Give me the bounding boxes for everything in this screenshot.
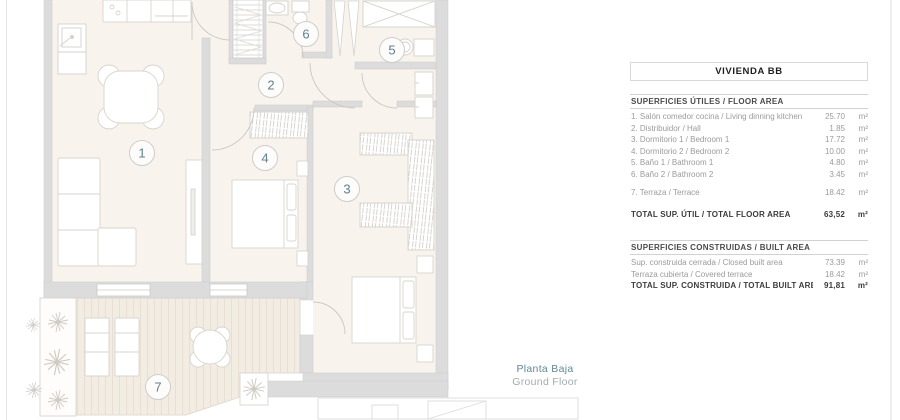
area-row-unit: m² [845,111,868,123]
area-row-val: 73.39 [813,257,845,269]
svg-text:2: 2 [267,78,274,93]
bedroom2-wardrobe [250,112,308,138]
area-section: SUPERFICIES ÚTILES / FLOOR AREA1. Salón … [630,94,868,220]
area-row: 6. Baño 2 / Bathroom 23.45m² [630,169,868,181]
area-row-unit: m² [845,123,868,135]
floor-label-en: Ground Floor [495,376,595,389]
terrace-table [190,327,230,367]
svg-text:3: 3 [343,182,350,197]
total-row-unit: m² [845,280,868,292]
area-row-lbl: Sup. construida cerrada / Closed built a… [631,257,813,269]
svg-text:5: 5 [388,43,395,58]
room-label-2: 2 [259,73,284,98]
area-row-lbl: 4. Dormitorio 2 / Bedroom 2 [631,146,813,158]
total-row-val: 91,81 [813,280,845,292]
unit-title: VIVIENDA BB [630,62,868,81]
adjacent-unit-outline [318,398,578,419]
room-label-5: 5 [380,38,405,63]
section-header: SUPERFICIES CONSTRUIDAS / BUILT AREA [630,240,868,255]
area-row-unit: m² [845,257,868,269]
hall-closet [415,72,433,118]
area-row-unit: m² [845,169,868,181]
area-row-unit: m² [845,187,868,199]
room-label-6: 6 [294,22,319,47]
area-row-lbl: 6. Baño 2 / Bathroom 2 [631,169,813,181]
area-sections: SUPERFICIES ÚTILES / FLOOR AREA1. Salón … [630,94,868,292]
area-row-lbl: Terraza cubierta / Covered terrace [631,269,813,281]
area-row-val: 25.70 [813,111,845,123]
svg-text:7: 7 [154,380,161,395]
total-row: TOTAL SUP. CONSTRUIDA / TOTAL BUILT AREA… [630,280,868,292]
room-label-4: 4 [253,146,278,171]
area-row-val: 3.45 [813,169,845,181]
area-row: 2. Distribuidor / Hall1.85m² [630,123,868,135]
area-row-val: 18.42 [813,187,845,199]
area-row: 7. Terraza / Terrace18.42m² [630,187,868,199]
dining-table [98,65,164,129]
area-row-val: 1.85 [813,123,845,135]
room-label-7: 7 [146,375,171,400]
svg-text:6: 6 [302,27,309,42]
area-row-val: 10.00 [813,146,845,158]
floor-label: Planta Baja Ground Floor [495,363,595,389]
area-section: SUPERFICIES CONSTRUIDAS / BUILT AREASup.… [630,240,868,292]
svg-text:4: 4 [261,151,268,166]
section-header: SUPERFICIES ÚTILES / FLOOR AREA [630,94,868,109]
area-row-val: 4.80 [813,157,845,169]
screenshot-root: 1 2 3 4 5 6 7 VIVIENDA BB SUPERFICIES ÚT… [0,0,900,420]
area-row-lbl: 7. Terraza / Terrace [631,187,813,199]
total-row: TOTAL SUP. ÚTIL / TOTAL FLOOR AREA63,52m… [630,209,868,221]
kitchen-sink [58,24,86,74]
total-row-lbl: TOTAL SUP. ÚTIL / TOTAL FLOOR AREA [631,209,813,221]
area-row: 3. Dormitorio 1 / Bedroom 117.72m² [630,134,868,146]
total-row-val: 63,52 [813,209,845,221]
area-row: 5. Baño 1 / Bathroom 14.80m² [630,157,868,169]
staircase [233,0,263,58]
room-label-1: 1 [130,141,155,166]
area-row-lbl: 2. Distribuidor / Hall [631,123,813,135]
area-row-unit: m² [845,157,868,169]
area-row-val: 18.42 [813,269,845,281]
area-row: 4. Dormitorio 2 / Bedroom 210.00m² [630,146,868,158]
area-row-unit: m² [845,269,868,281]
room-label-3: 3 [335,177,360,202]
tv-unit [186,160,202,264]
area-table-panel: VIVIENDA BB SUPERFICIES ÚTILES / FLOOR A… [630,62,868,292]
floor-label-es: Planta Baja [495,363,595,376]
total-row-unit: m² [845,209,868,221]
total-row-lbl: TOTAL SUP. CONSTRUIDA / TOTAL BUILT AREA [631,280,813,292]
area-row-unit: m² [845,146,868,158]
svg-text:1: 1 [138,146,145,161]
kitchen-counter [103,0,191,22]
area-row-unit: m² [845,134,868,146]
area-row-lbl: 3. Dormitorio 1 / Bedroom 1 [631,134,813,146]
area-row: 1. Salón comedor cocina / Living dinning… [630,111,868,123]
area-row: Sup. construida cerrada / Closed built a… [630,257,868,269]
area-row: Terraza cubierta / Covered terrace18.42m… [630,269,868,281]
area-row-val: 17.72 [813,134,845,146]
area-row-lbl: 1. Salón comedor cocina / Living dinning… [631,111,813,123]
area-row-lbl: 5. Baño 1 / Bathroom 1 [631,157,813,169]
